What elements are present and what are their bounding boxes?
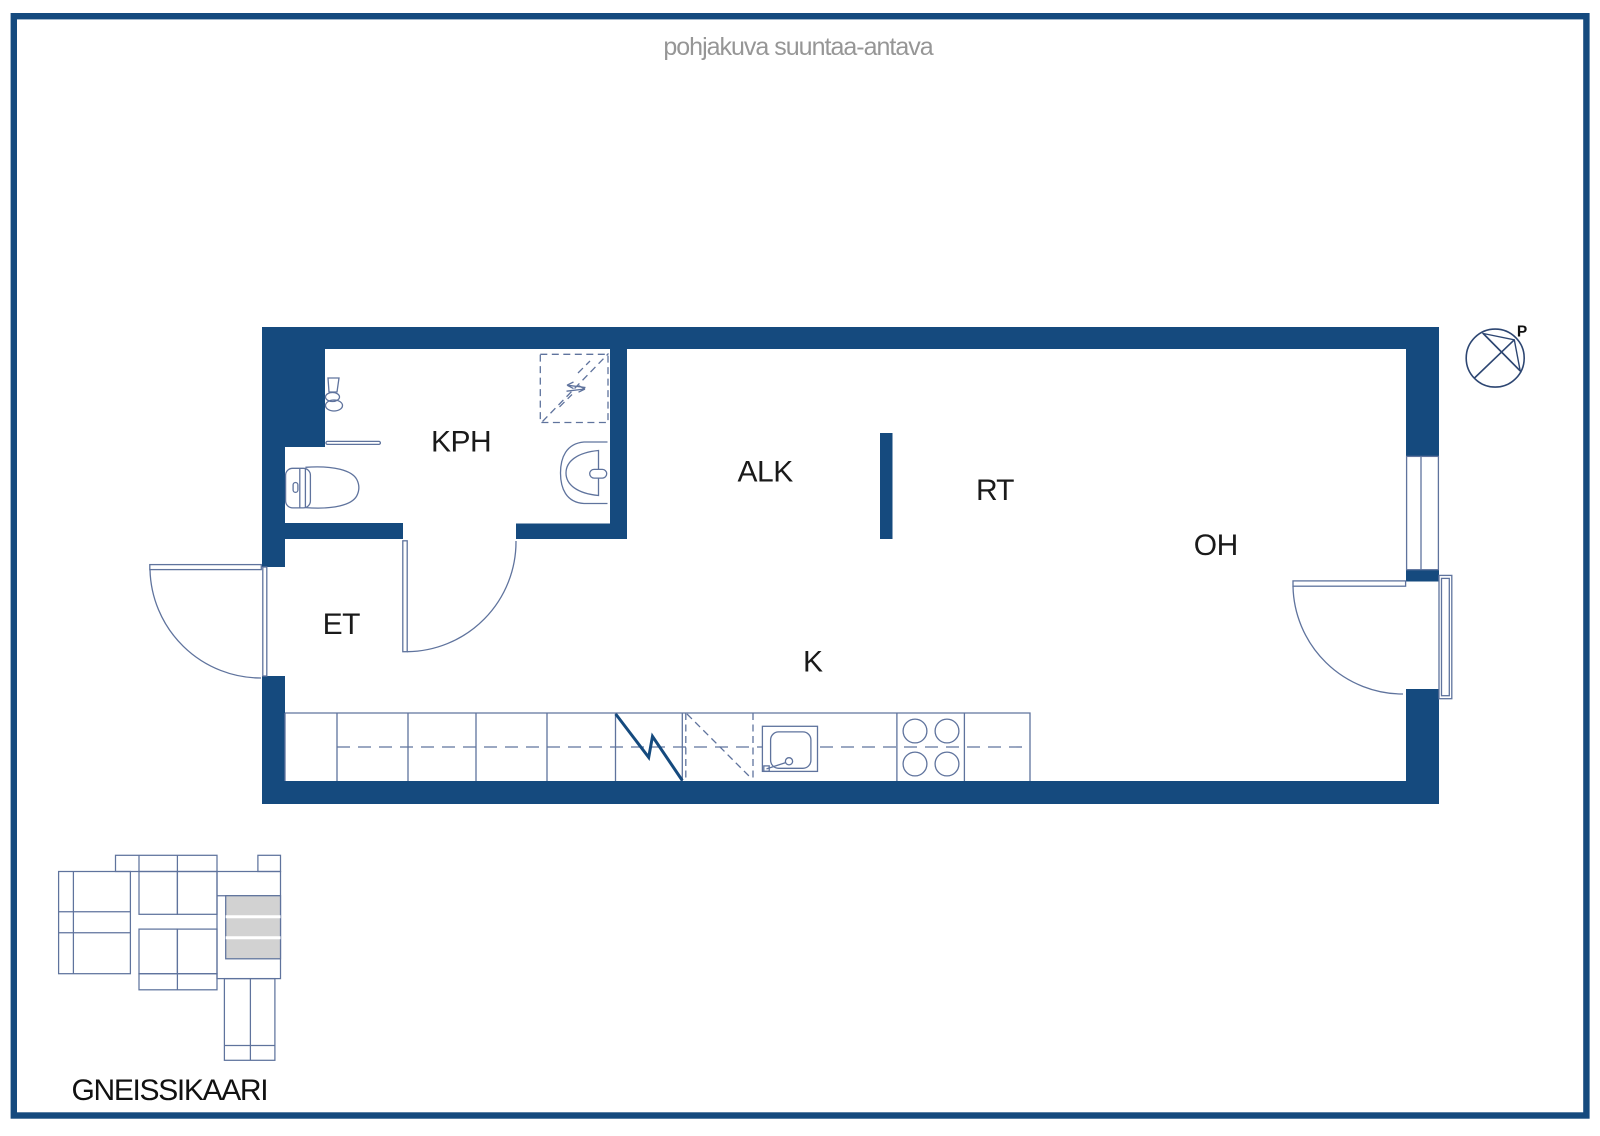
svg-text:P: P xyxy=(1517,324,1527,341)
svg-text:GNEISSIKAARI: GNEISSIKAARI xyxy=(72,1074,268,1107)
svg-text:ET: ET xyxy=(323,608,361,641)
svg-text:KPH: KPH xyxy=(431,426,491,459)
svg-text:ALK: ALK xyxy=(738,455,794,488)
svg-text:RT: RT xyxy=(976,474,1014,507)
svg-text:pohjakuva suuntaa-antava: pohjakuva suuntaa-antava xyxy=(663,33,933,61)
svg-text:K: K xyxy=(803,646,823,679)
svg-text:OH: OH xyxy=(1194,529,1238,562)
